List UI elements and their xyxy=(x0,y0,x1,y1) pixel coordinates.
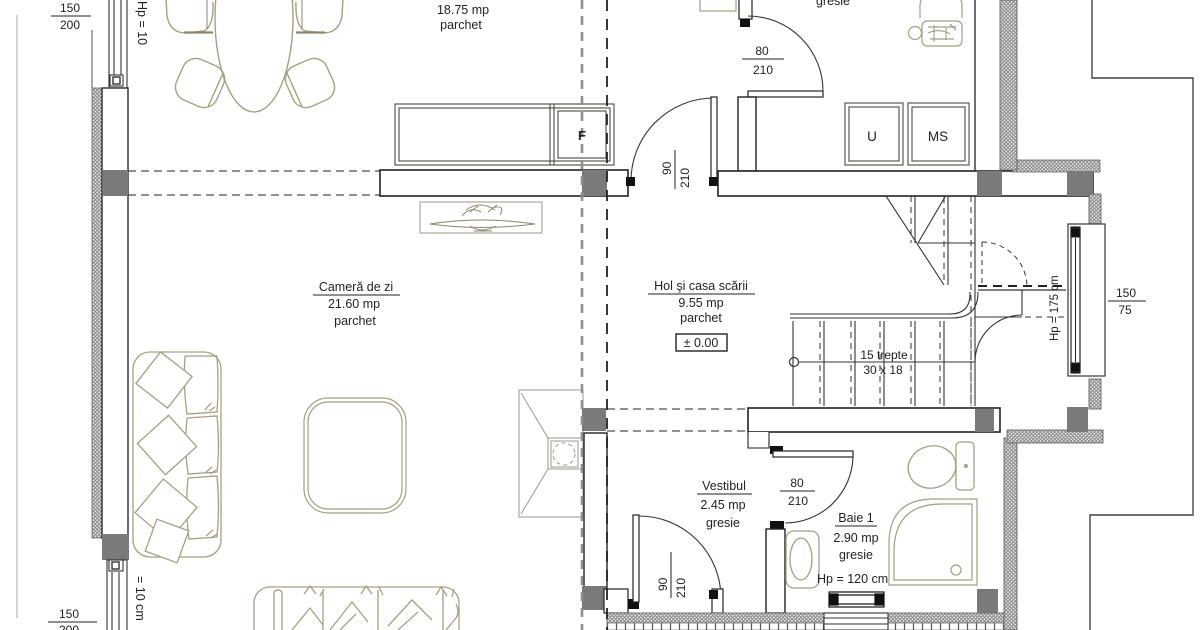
svg-text:± 0.00: ± 0.00 xyxy=(684,336,719,350)
svg-text:200: 200 xyxy=(60,18,80,32)
svg-text:210: 210 xyxy=(788,494,808,508)
svg-text:150: 150 xyxy=(1116,286,1136,300)
svg-text:Vestibul: Vestibul xyxy=(702,479,746,493)
svg-text:30 x 18: 30 x 18 xyxy=(863,363,903,377)
svg-text:gresie: gresie xyxy=(839,548,873,562)
svg-text:Hp = 10: Hp = 10 xyxy=(135,1,149,45)
svg-text:Cameră de zi: Cameră de zi xyxy=(319,280,393,294)
svg-text:150: 150 xyxy=(60,1,80,15)
svg-text:75: 75 xyxy=(1118,303,1132,317)
svg-text:gresie: gresie xyxy=(706,516,740,530)
svg-text:= 10 cm: = 10 cm xyxy=(133,576,147,621)
svg-text:80: 80 xyxy=(755,44,769,58)
svg-text:parchet: parchet xyxy=(680,311,722,325)
svg-text:gresie: gresie xyxy=(816,0,850,8)
svg-text:F: F xyxy=(578,128,586,143)
svg-text:90: 90 xyxy=(660,161,674,175)
svg-text:80: 80 xyxy=(790,476,804,490)
svg-text:200: 200 xyxy=(59,623,79,630)
svg-text:Hp = 120 cm: Hp = 120 cm xyxy=(817,572,888,586)
svg-text:21.60 mp: 21.60 mp xyxy=(328,297,380,311)
svg-text:210: 210 xyxy=(678,168,692,188)
svg-text:210: 210 xyxy=(753,63,773,77)
svg-text:2.45 mp: 2.45 mp xyxy=(700,498,745,512)
svg-text:Baie 1: Baie 1 xyxy=(838,511,873,525)
svg-text:210: 210 xyxy=(674,578,688,598)
svg-text:parchet: parchet xyxy=(440,18,482,32)
svg-text:18.75 mp: 18.75 mp xyxy=(437,3,489,17)
svg-text:Hol şi casa scării: Hol şi casa scării xyxy=(654,279,748,293)
svg-text:9.55 mp: 9.55 mp xyxy=(678,296,723,310)
svg-text:2.90 mp: 2.90 mp xyxy=(833,531,878,545)
svg-text:MS: MS xyxy=(928,129,948,144)
svg-text:Hp = 175 cm: Hp = 175 cm xyxy=(1049,275,1061,341)
svg-text:U: U xyxy=(867,129,877,144)
svg-text:parchet: parchet xyxy=(334,314,376,328)
svg-text:150: 150 xyxy=(59,607,79,621)
svg-text:15 trepte: 15 trepte xyxy=(860,348,908,362)
svg-text:90: 90 xyxy=(656,577,670,591)
